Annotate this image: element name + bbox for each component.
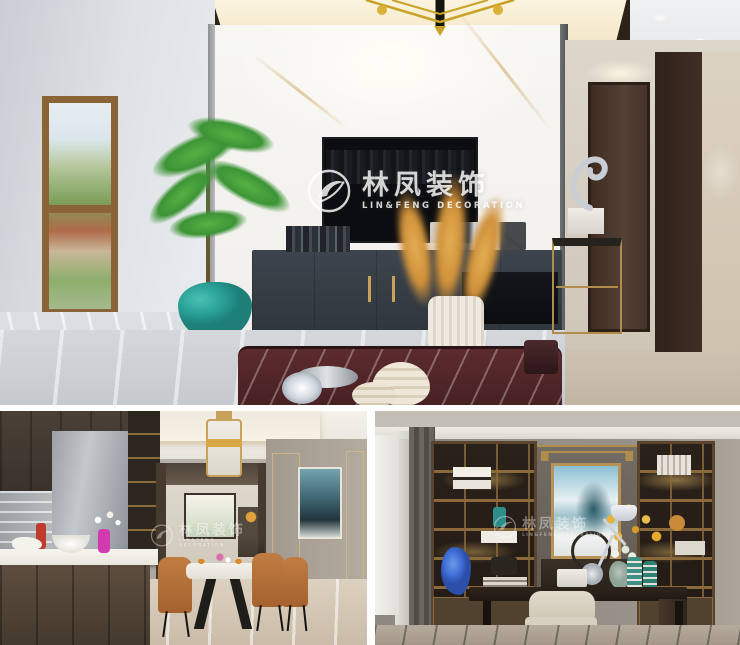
- photo-kitchen-dining[interactable]: 林凤装饰 LIN&FENG DECORATION: [0, 411, 367, 645]
- photo-study[interactable]: 林凤装饰 LIN&FENG DECORATION: [375, 411, 740, 645]
- island-marble-counter: [0, 549, 158, 565]
- linfeng-logo-icon: [306, 168, 352, 214]
- amber-ornament: [669, 515, 685, 531]
- white-flower-sprigs: [86, 507, 126, 533]
- vintage-camera: [491, 557, 517, 575]
- green-patterned-vase: [643, 561, 657, 589]
- shelf-storage-box: [675, 541, 705, 555]
- watermark: 林凤装饰 LIN&FENG DECORATION: [493, 515, 607, 539]
- crystal-ornament: [282, 372, 322, 404]
- white-typewriter: [557, 569, 587, 587]
- tan-dining-chair: [252, 553, 284, 607]
- shell-ornament: [352, 382, 396, 405]
- ribbed-white-vase: [428, 296, 484, 352]
- cabinet-gold-handle: [368, 276, 371, 302]
- watermark-chinese: 林凤装饰: [362, 172, 525, 199]
- watermark: 林凤装饰 LIN&FENG DECORATION: [306, 168, 525, 214]
- shelf-books: [657, 455, 691, 475]
- watermark-chinese: 林凤装饰: [522, 517, 607, 531]
- console-cross-bar: [556, 286, 618, 288]
- dark-marble-floor: [375, 625, 740, 645]
- dark-red-vessel: [524, 340, 558, 374]
- seascape-artwork: [298, 467, 342, 539]
- island-wood-base: [0, 565, 150, 645]
- cream-desk-chair-back: [529, 591, 595, 619]
- table-centerpiece: [192, 553, 254, 567]
- pendant-gold-band: [206, 439, 242, 447]
- watermark: 林凤装饰 LIN&FENG DECORATION: [150, 523, 263, 547]
- silver-abstract-sculpture: [560, 148, 612, 214]
- desk-lamp-shade: [611, 505, 637, 521]
- pendant-canopy: [216, 411, 232, 421]
- shelf-white-boxes: [453, 467, 491, 489]
- white-gravy-boat: [12, 537, 42, 551]
- green-patterned-vase: [627, 557, 642, 589]
- tan-dining-chair: [282, 557, 308, 607]
- photo-living-room[interactable]: 林凤装饰 LIN&FENG DECORATION: [0, 0, 740, 405]
- gold-sputnik-chandelier: [352, 0, 528, 44]
- watermark-english: LIN&FENG DECORATION: [522, 533, 607, 537]
- watermark-chinese: 林凤装饰: [179, 523, 263, 537]
- photo-collage: 林凤装饰 LIN&FENG DECORATION: [0, 0, 740, 645]
- gold-arch-trim: [541, 451, 633, 461]
- study-ceiling: [375, 411, 740, 427]
- beige-wall-panel: [702, 52, 740, 352]
- blue-art-vase: [441, 547, 471, 595]
- cabinet-gold-handle: [392, 276, 395, 302]
- wall-molding-frame: [346, 451, 364, 583]
- window-crossbar: [42, 205, 118, 213]
- books-on-cabinet: [286, 226, 350, 252]
- watermark-english: LIN&FENG DECORATION: [179, 539, 263, 548]
- lantern-pendant-light: [206, 419, 242, 477]
- watermark-english: LIN&FENG DECORATION: [362, 202, 525, 211]
- linfeng-logo-icon: [150, 523, 174, 547]
- linfeng-logo-icon: [493, 515, 517, 539]
